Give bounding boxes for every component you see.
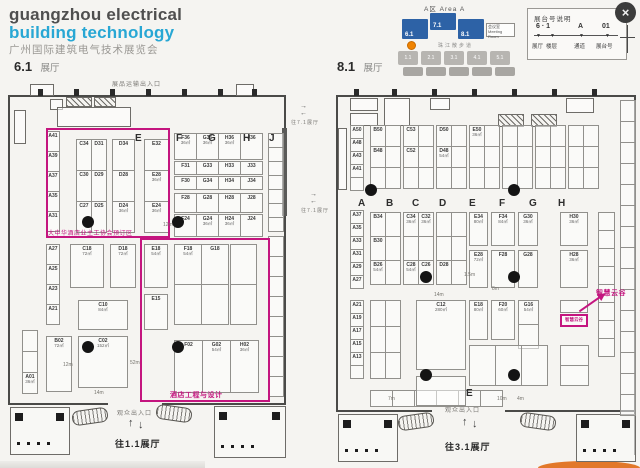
booth [620, 247, 636, 269]
door-marker [38, 89, 43, 96]
booth [370, 300, 386, 327]
booth [22, 351, 38, 373]
booth: D28 [436, 260, 452, 285]
structure-wall [336, 410, 432, 412]
booth: C1872㎡ [70, 244, 104, 288]
booth [517, 125, 533, 147]
booth [418, 236, 434, 261]
booth [502, 125, 518, 147]
booth [484, 125, 500, 147]
booth [385, 125, 401, 147]
booth: E2872㎡ [469, 250, 488, 288]
booth: F2060㎡ [491, 300, 515, 340]
booth: H3636㎡ [218, 133, 241, 160]
booth [268, 336, 284, 357]
booth: A31 [350, 249, 364, 263]
floorplan-canvas: A41A39A37A35A31C34D31C30D29C27D25D34D28D… [0, 0, 640, 468]
booth: F31 [174, 161, 197, 175]
booth [469, 345, 496, 386]
aisle-letter: E [135, 133, 142, 144]
door-marker [432, 89, 437, 96]
booth: H3036㎡ [560, 212, 588, 246]
dimension-label: 4m [517, 396, 524, 402]
booth: G1654㎡ [518, 300, 539, 325]
dimension-label: 8m [492, 286, 499, 292]
hotel-association-zone-label: 大中华酒店业主工协会预订区 [48, 228, 133, 237]
booth: C12280㎡ [416, 300, 466, 370]
booth [620, 394, 636, 416]
booth: G34 [196, 176, 219, 190]
aisle-letter: D [439, 198, 446, 209]
booth: D50 [436, 125, 452, 147]
booth: C53 [403, 125, 419, 147]
booth: A15 [350, 339, 364, 353]
booth [451, 146, 467, 168]
booth [517, 146, 533, 168]
booth [268, 175, 284, 190]
booth [370, 352, 386, 379]
booth: E1880㎡ [469, 300, 488, 340]
booth [550, 125, 566, 147]
dimension-label: 7m [388, 396, 395, 402]
booth [403, 236, 419, 261]
facility-block [338, 414, 398, 462]
booth [484, 167, 500, 189]
structure-hatch [94, 97, 116, 107]
dimension-label: 14m [434, 292, 444, 298]
door-marker [472, 89, 477, 96]
aisle-letter: J [269, 133, 275, 144]
booth [620, 373, 636, 395]
booth [268, 356, 284, 377]
booth [22, 330, 38, 352]
booth [451, 212, 467, 237]
bottom-caption-smudge [0, 461, 205, 468]
booth: B34 [370, 212, 386, 237]
event-area [57, 107, 131, 127]
booth [385, 236, 401, 261]
booth [403, 167, 419, 189]
booth [385, 260, 401, 285]
booth: A21 [46, 304, 60, 325]
booth: G28 [196, 193, 219, 213]
booth [568, 125, 584, 147]
hall61-visitor-entrance-label: 观众出入口 [117, 408, 152, 417]
booth: C1084㎡ [78, 300, 128, 330]
booth: J24 [240, 214, 263, 237]
booth: F3484㎡ [491, 212, 515, 246]
booth [451, 125, 467, 147]
booth [385, 300, 401, 327]
booth [598, 248, 615, 267]
booth: H2436㎡ [218, 214, 241, 237]
booth [620, 310, 636, 332]
booth [535, 146, 551, 168]
hotel-engineering-design-label: 酒店工程与设计 [170, 390, 223, 400]
booth: A13 [350, 352, 364, 366]
booth [268, 189, 284, 204]
aisle-letter: C [412, 198, 419, 209]
structure-wall [8, 95, 10, 405]
aisle-letter: G [208, 133, 216, 144]
booth [484, 146, 500, 168]
booth: A25 [46, 264, 60, 285]
booth [268, 203, 284, 218]
booth [469, 146, 485, 168]
highlight-hotel-association-zone [46, 128, 170, 238]
booth [550, 167, 566, 189]
booth: C52 [403, 146, 419, 168]
booth [598, 338, 615, 357]
booth [436, 167, 452, 189]
booth: A37 [350, 210, 364, 224]
dimension-label: 12m [163, 222, 173, 228]
booth [598, 266, 615, 285]
booth [418, 125, 434, 147]
structure-room [14, 110, 26, 144]
booth: J28 [240, 193, 263, 213]
booth: B2654㎡ [370, 260, 386, 285]
booth: D4854㎡ [436, 146, 452, 168]
door-marker [218, 89, 223, 96]
booth: B50 [370, 125, 386, 147]
booth: A50 [350, 125, 364, 139]
booth [268, 376, 284, 397]
booth: A19 [350, 313, 364, 327]
booth [469, 167, 485, 189]
booth [583, 146, 599, 168]
booth [436, 236, 452, 261]
hall81-visitor-entrance-label: 观众出入口 [445, 405, 480, 414]
door-marker [354, 89, 359, 96]
facility-block [214, 406, 286, 458]
booth: A23 [46, 284, 60, 305]
facility-block [576, 414, 636, 462]
booth: G3036㎡ [518, 212, 538, 246]
booth: A27 [350, 275, 364, 289]
aisle-letter: F [176, 133, 182, 144]
dimension-label: 12m [63, 362, 73, 368]
facility-block [10, 407, 70, 455]
aisle-letter: E [466, 388, 473, 399]
right-arrow-icon: → [300, 104, 307, 110]
booth: F28 [174, 193, 197, 213]
booth [535, 167, 551, 189]
booth [620, 121, 636, 143]
booth: F30 [174, 176, 197, 190]
booth [620, 142, 636, 164]
booth [598, 212, 615, 231]
booth [350, 177, 364, 191]
booth [535, 125, 551, 147]
booth: C2854㎡ [403, 260, 419, 285]
booth [583, 167, 599, 189]
booth [620, 205, 636, 227]
booth [620, 100, 636, 122]
booth [598, 230, 615, 249]
escalator-icon [71, 407, 109, 427]
booth [502, 146, 518, 168]
booth: H33 [218, 161, 241, 175]
booth [451, 236, 467, 261]
booth [495, 345, 522, 386]
booth [620, 226, 636, 248]
booth: A17 [350, 326, 364, 340]
aisle-letter: E [469, 198, 476, 209]
up-arrow-icon: ↑ [128, 417, 134, 429]
door-marker [146, 89, 151, 96]
highlight-hotel-engineering-zone [140, 238, 270, 402]
door-marker [392, 89, 397, 96]
booth [620, 331, 636, 353]
left-arrow-icon: ← [300, 111, 307, 117]
booth [598, 302, 615, 321]
booth [385, 167, 401, 189]
aisle-letter: F [499, 198, 505, 209]
booth: C3236㎡ [418, 212, 434, 237]
booth [620, 268, 636, 290]
aisle-letter: A [358, 198, 365, 209]
down-arrow-icon: ↓ [138, 419, 144, 431]
booth [517, 167, 533, 189]
booth: A33 [350, 236, 364, 250]
structure-wall [336, 95, 636, 97]
dimension-label: 52m [130, 360, 140, 366]
booth [568, 146, 584, 168]
structure-room [350, 98, 378, 111]
door-marker [74, 89, 79, 96]
booth [418, 167, 434, 189]
booth [385, 212, 401, 237]
door-marker [592, 89, 597, 96]
dimension-label: 1.5m [464, 272, 475, 278]
right-arrow-icon: → [310, 192, 317, 198]
booth [451, 167, 467, 189]
booth: A41 [350, 164, 364, 178]
booth [350, 365, 364, 379]
booth: A35 [350, 223, 364, 237]
booth [620, 352, 636, 374]
pillar-dot [508, 271, 520, 283]
booth: E3480㎡ [469, 212, 488, 246]
pillar-dot [508, 184, 520, 196]
pillar-dot [420, 271, 432, 283]
structure-room [566, 98, 594, 113]
escalator-icon [519, 412, 557, 432]
dimension-label: 10m [497, 396, 507, 402]
booth [268, 256, 284, 277]
booth [385, 352, 401, 379]
booth: A43 [350, 151, 364, 165]
booth [392, 390, 415, 407]
aisle-letter: G [529, 198, 537, 209]
booth [583, 125, 599, 147]
booth: H34 [218, 176, 241, 190]
booth [385, 326, 401, 353]
structure-wall [8, 403, 108, 405]
booth: G2436㎡ [196, 214, 219, 237]
booth: E5036㎡ [469, 125, 485, 147]
dimension-label: 14m [94, 390, 104, 396]
pillar-dot [508, 369, 520, 381]
booth: G33 [196, 161, 219, 175]
booth [268, 296, 284, 317]
booth [268, 161, 284, 176]
booth: J33 [240, 161, 263, 175]
booth: H28 [218, 193, 241, 213]
structure-hatch [66, 97, 92, 107]
booth [560, 345, 589, 366]
aisle-letter: H [558, 198, 565, 209]
door-marker [110, 89, 115, 96]
booth: G28 [518, 250, 538, 288]
booth [385, 146, 401, 168]
left-arrow-icon: ← [310, 199, 317, 205]
booth: B48 [370, 146, 386, 168]
booth: A29 [350, 262, 364, 276]
booth: A21 [350, 300, 364, 314]
pillar-dot [420, 369, 432, 381]
booth [268, 147, 284, 162]
hall61-freight-entrance-label: 展品运输出入口 [112, 79, 161, 88]
booth [550, 146, 566, 168]
booth: C3436㎡ [403, 212, 419, 237]
booth [620, 184, 636, 206]
booth: A0136㎡ [22, 372, 38, 394]
booth [436, 212, 452, 237]
booth [560, 365, 589, 386]
booth [268, 236, 284, 257]
booth [620, 163, 636, 185]
exhibition-floorplan-image: guangzhou electrical building technology… [0, 0, 640, 468]
escalator-icon [155, 404, 193, 424]
structure-room [430, 98, 450, 110]
booth: D1872㎡ [110, 244, 136, 288]
booth [268, 276, 284, 297]
structure-room [384, 98, 410, 126]
booth [268, 217, 284, 232]
to-hall-7-1-label: 往7.1展厅 [301, 207, 329, 214]
booth: B30 [370, 236, 386, 261]
booth [568, 167, 584, 189]
door-marker [252, 89, 257, 96]
door-marker [182, 89, 187, 96]
booth: H2836㎡ [560, 250, 588, 288]
door-marker [512, 89, 517, 96]
pillar-dot [365, 184, 377, 196]
to-hall-7-1-label: 往7.1展厅 [291, 119, 319, 126]
booth [268, 316, 284, 337]
down-arrow-icon: ↓ [472, 418, 478, 430]
booth [370, 326, 386, 353]
aisle-letter: H [243, 133, 250, 144]
booth: A48 [350, 138, 364, 152]
escalator-icon [397, 412, 435, 432]
booth: J34 [240, 176, 263, 190]
booth: 智慧云谷 [560, 314, 588, 327]
bottom-right-banner-edge [538, 461, 640, 468]
pillar-dot [172, 216, 184, 228]
pillar-dot [82, 341, 94, 353]
structure-wall [162, 403, 286, 405]
aisle-letter: B [386, 198, 393, 209]
booth: A27 [46, 244, 60, 265]
to-hall-1-1-label: 往1.1展厅 [115, 437, 161, 450]
booth [521, 345, 548, 386]
booth [598, 320, 615, 339]
to-hall-3-1-label: 往3.1展厅 [445, 440, 491, 453]
structure-room [338, 128, 347, 190]
booth [418, 146, 434, 168]
door-marker [552, 89, 557, 96]
up-arrow-icon: ↑ [462, 416, 468, 428]
